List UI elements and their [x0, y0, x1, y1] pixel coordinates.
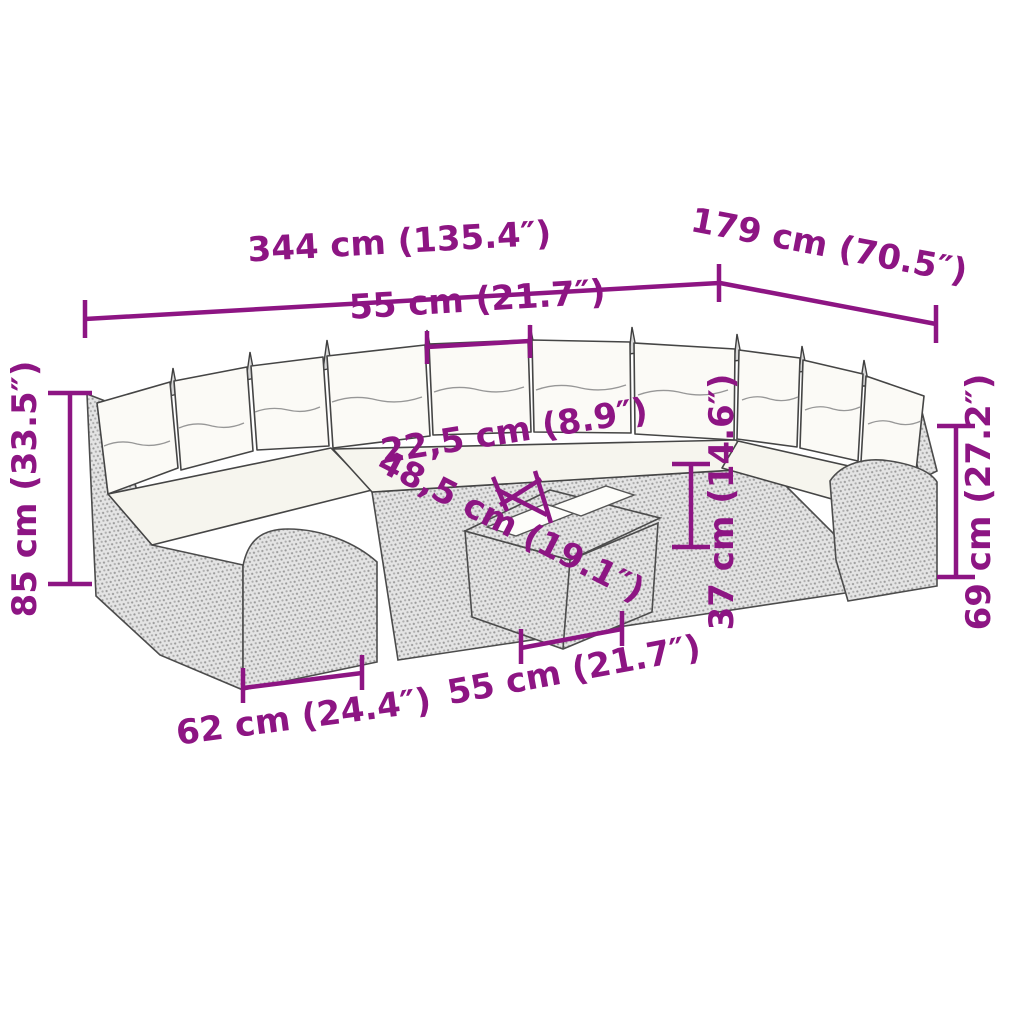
- back-cushion: [97, 382, 178, 494]
- front-left-armrest: [243, 529, 377, 690]
- dimension-label: 344 cm (135.4″): [246, 214, 552, 271]
- back-cushion: [251, 357, 329, 450]
- dimension-label: 85 cm (33.5″): [5, 361, 45, 618]
- product-dimension-image: 344 cm (135.4″) 179 cm (70.5″) 55 cm (21…: [0, 0, 1024, 1024]
- dimension-line: [720, 283, 936, 324]
- right-armrest: [830, 460, 937, 601]
- back-cushion: [174, 367, 253, 470]
- sofa-dimension-diagram: 344 cm (135.4″) 179 cm (70.5″) 55 cm (21…: [0, 0, 1024, 1024]
- dimension-arm-height: 69 cm (27.2″): [937, 374, 999, 631]
- dimension-total-depth: 179 cm (70.5″): [688, 200, 971, 343]
- dimension-label: 62 cm (24.4″): [174, 681, 434, 754]
- back-cushion: [800, 360, 863, 461]
- dimension-label: 37 cm (14.6″): [702, 374, 742, 631]
- dimension-label: 69 cm (27.2″): [959, 374, 999, 631]
- dimension-label: 179 cm (70.5″): [688, 200, 971, 292]
- dimension-total-height: 85 cm (33.5″): [5, 361, 92, 618]
- dimension-label: 55 cm (21.7″): [348, 272, 607, 328]
